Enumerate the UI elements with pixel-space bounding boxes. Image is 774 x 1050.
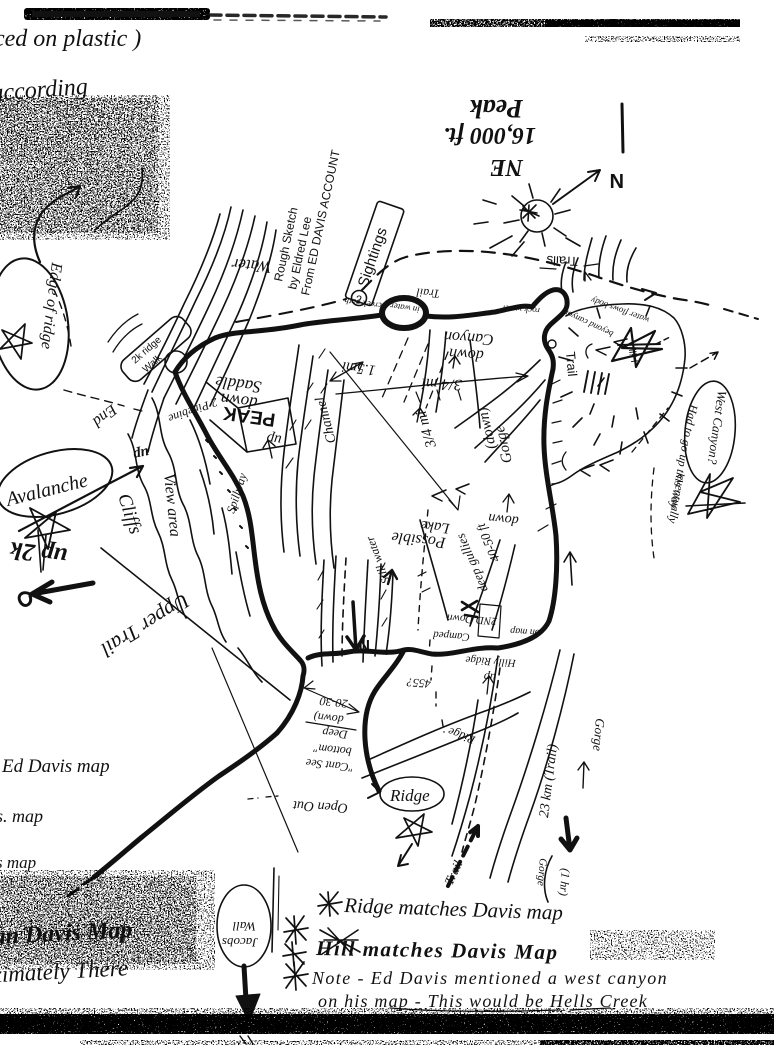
svg-text:NE: NE xyxy=(490,154,524,180)
svg-text:(1 hr): (1 hr) xyxy=(557,868,573,897)
svg-text:2ND Down: 2ND Down xyxy=(446,611,497,626)
svg-text:Wall: Wall xyxy=(232,919,256,934)
svg-text:ced on plastic ): ced on plastic ) xyxy=(0,26,141,52)
svg-text:Open Out: Open Out xyxy=(292,797,349,815)
svg-text:water flows body: water flows body xyxy=(589,295,650,325)
svg-text:3/4 mi: 3/4 mi xyxy=(413,409,440,451)
svg-text:on map: on map xyxy=(510,625,540,638)
svg-text:Peak: Peak xyxy=(470,94,524,123)
svg-text:Upper Trail: Upper Trail xyxy=(97,589,194,662)
svg-text:23 km (Trail): 23 km (Trail) xyxy=(537,743,561,819)
svg-text:3/4 mi: 3/4 mi xyxy=(421,375,463,393)
svg-text:Cliffs: Cliffs xyxy=(113,491,146,537)
svg-text:Gorge: Gorge xyxy=(535,858,549,887)
svg-text:Trail: Trail xyxy=(563,351,580,377)
svg-text:creek path: creek path xyxy=(343,296,382,311)
svg-text:Hilly Ridge: Hilly Ridge xyxy=(465,653,517,669)
svg-text:Channel: Channel xyxy=(313,395,340,445)
svg-text:s. map: s. map xyxy=(0,806,43,826)
svg-text:down: down xyxy=(488,510,520,528)
svg-text:Trail: Trail xyxy=(415,285,440,301)
svg-text:ximately There: ximately There xyxy=(0,955,129,987)
svg-text:455?: 455? xyxy=(406,675,431,691)
svg-text:Ridge: Ridge xyxy=(389,786,430,805)
svg-text:View area: View area xyxy=(160,473,184,538)
svg-text:Ed Davis map: Ed Davis map xyxy=(1,756,110,777)
svg-text:Camped: Camped xyxy=(432,628,470,643)
svg-text:Jacobs: Jacobs xyxy=(222,935,258,950)
svg-text:Note - Ed Davis mentioned a we: Note - Ed Davis mentioned a west canyon xyxy=(311,968,668,988)
svg-text:up: up xyxy=(483,670,496,685)
svg-text:N: N xyxy=(610,169,624,191)
svg-text:beyond canyon: beyond canyon xyxy=(561,307,615,339)
svg-text:Hill: Hill xyxy=(628,348,641,363)
svg-text:16,000 ft.: 16,000 ft. xyxy=(443,122,536,148)
svg-text:End: End xyxy=(88,400,120,430)
svg-text:up: up xyxy=(131,444,150,463)
svg-text:Trails: Trails xyxy=(546,253,578,269)
svg-text:Avalanche: Avalanche xyxy=(2,469,90,511)
svg-text:Sightings: Sightings xyxy=(355,225,391,289)
svg-text:up 2k: up 2k xyxy=(8,536,69,570)
svg-text:s map: s map xyxy=(0,853,36,872)
svg-text:Gorge: Gorge xyxy=(590,718,608,752)
svg-text:1.5mi: 1.5mi xyxy=(341,358,376,378)
svg-text:bottom": bottom" xyxy=(312,741,353,759)
svg-text:West Canyon?: West Canyon? xyxy=(705,390,730,466)
svg-text:Ridge matches Davis map: Ridge matches Davis map xyxy=(343,893,563,925)
